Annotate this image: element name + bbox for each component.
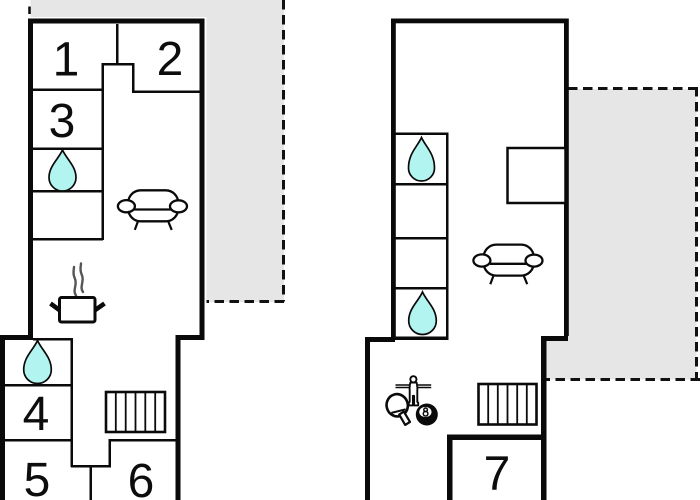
svg-text:5: 5 — [24, 454, 51, 500]
svg-text:3: 3 — [49, 95, 76, 148]
svg-text:6: 6 — [128, 455, 155, 500]
svg-text:7: 7 — [484, 448, 511, 500]
svg-text:4: 4 — [23, 388, 50, 441]
svg-text:2: 2 — [157, 33, 184, 86]
svg-text:1: 1 — [53, 34, 80, 87]
